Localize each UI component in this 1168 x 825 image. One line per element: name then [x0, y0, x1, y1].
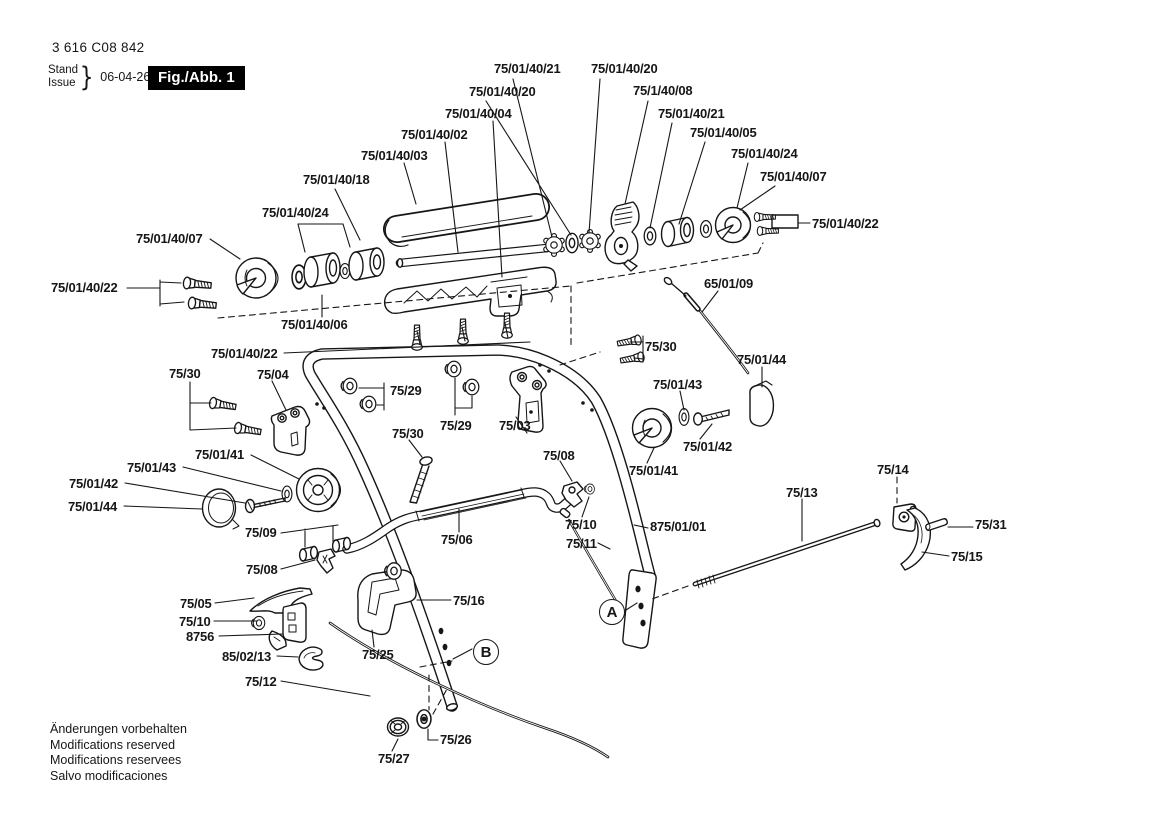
part-label: 75/01/40/05 — [690, 126, 756, 139]
part-label: 75/30 — [169, 367, 201, 380]
footer-line: Modifications reserved — [50, 738, 187, 754]
part-label: 75/01/44 — [68, 500, 117, 513]
footer-line: Salvo modificaciones — [50, 769, 187, 785]
footer-line: Änderungen vorbehalten — [50, 722, 187, 738]
part-label: 75/25 — [362, 648, 394, 661]
footer-notes: Änderungen vorbehalten Modifications res… — [50, 722, 187, 784]
part-label: 75/26 — [440, 733, 472, 746]
part-label: 75/01/40/06 — [281, 318, 347, 331]
part-label: 75/30 — [645, 340, 677, 353]
part-label: 75/01/40/21 — [494, 62, 560, 75]
part-label: 75/30 — [392, 427, 424, 440]
parts-diagram-page: 3 616 C08 842 Stand Issue } 06-04-26 Fig… — [0, 0, 1168, 825]
part-label: 75/01/40/24 — [262, 206, 328, 219]
part-label: 75/01/40/22 — [812, 217, 878, 230]
part-label: 75/12 — [245, 675, 277, 688]
view-marker-a: A — [599, 599, 625, 625]
part-label: 75/01/44 — [737, 353, 786, 366]
part-label: 85/02/13 — [222, 650, 271, 663]
part-label: 75/09 — [245, 526, 277, 539]
part-label: 75/10 — [179, 615, 211, 628]
view-marker-b: B — [473, 639, 499, 665]
part-label: 75/01/43 — [127, 461, 176, 474]
part-label: 65/01/09 — [704, 277, 753, 290]
part-label: 75/01/40/21 — [658, 107, 724, 120]
part-label: 75/11 — [566, 537, 597, 550]
part-label: 875/01/01 — [650, 520, 706, 533]
part-label: 75/31 — [975, 518, 1007, 531]
part-label: 75/06 — [441, 533, 473, 546]
part-label: 75/01/41 — [629, 464, 678, 477]
part-label: 75/10 — [565, 518, 597, 531]
part-label: 75/15 — [951, 550, 983, 563]
part-label: 75/13 — [786, 486, 818, 499]
part-label: 75/01/40/02 — [401, 128, 467, 141]
part-label: 75/04 — [257, 368, 289, 381]
part-label: 75/29 — [440, 419, 472, 432]
part-label: 75/01/40/04 — [445, 107, 511, 120]
part-label: 75/01/40/22 — [51, 281, 117, 294]
part-label: 75/01/42 — [683, 440, 732, 453]
part-label: 75/14 — [877, 463, 909, 476]
part-label: 75/03 — [499, 419, 531, 432]
part-label: 75/08 — [543, 449, 575, 462]
part-label: 75/16 — [453, 594, 485, 607]
part-label: 75/08 — [246, 563, 278, 576]
part-label: 75/29 — [390, 384, 422, 397]
part-label: 75/27 — [378, 752, 410, 765]
part-label: 75/01/40/07 — [760, 170, 826, 183]
part-label: 75/01/43 — [653, 378, 702, 391]
exploded-view-drawing — [0, 0, 1168, 825]
part-label: 75/01/40/24 — [731, 147, 797, 160]
part-label: 75/01/41 — [195, 448, 244, 461]
part-label: 75/01/40/20 — [469, 85, 535, 98]
footer-line: Modifications reservees — [50, 753, 187, 769]
part-label: 75/05 — [180, 597, 212, 610]
part-label: 75/01/42 — [69, 477, 118, 490]
part-label: 75/01/40/18 — [303, 173, 369, 186]
part-label: 75/01/40/20 — [591, 62, 657, 75]
part-label: 75/01/40/22 — [211, 347, 277, 360]
part-label: 75/01/40/03 — [361, 149, 427, 162]
part-label: 8756 — [186, 630, 214, 643]
part-label: 75/1/40/08 — [633, 84, 692, 97]
part-label: 75/01/40/07 — [136, 232, 202, 245]
